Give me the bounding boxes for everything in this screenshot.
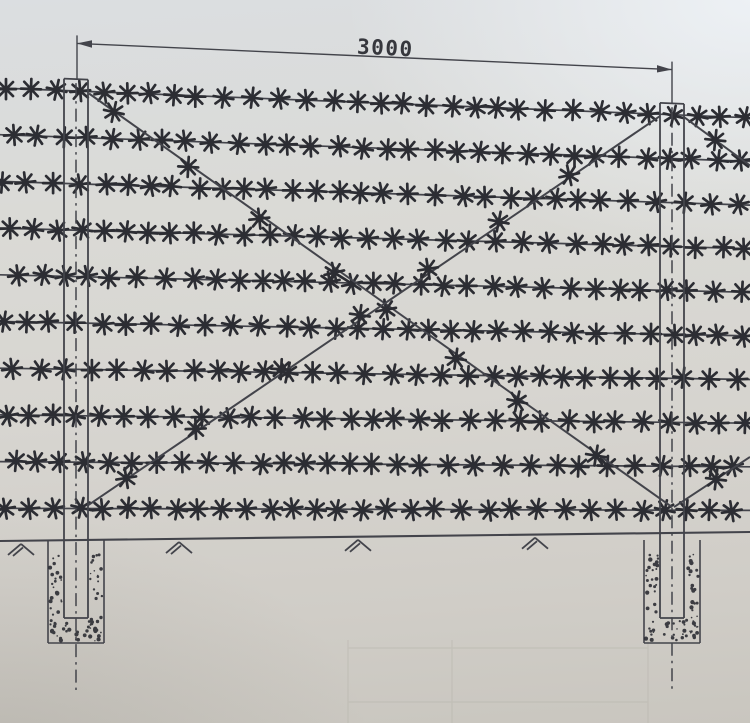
- barb-icon: [235, 498, 258, 521]
- barb-icon: [685, 237, 706, 258]
- barb-icon: [401, 499, 424, 522]
- barb-icon: [185, 87, 205, 107]
- barb-icon: [683, 323, 706, 346]
- barb-icon: [65, 313, 85, 333]
- barb-icon: [341, 408, 362, 429]
- barb-icon: [330, 181, 351, 202]
- barb-icon: [492, 143, 513, 164]
- barb-icon: [96, 174, 117, 195]
- barb-icon: [314, 409, 335, 430]
- barb-icon: [484, 409, 506, 431]
- dimension-label: 3000: [357, 35, 415, 62]
- barb-icon: [699, 368, 720, 389]
- barb-icon: [82, 360, 102, 380]
- barb-icon: [48, 451, 70, 473]
- barb-icon: [18, 405, 39, 426]
- soil-hatch-icon: [345, 540, 371, 552]
- barb-icon: [474, 187, 495, 208]
- barb-icon: [281, 497, 304, 520]
- barb-icon: [462, 320, 484, 342]
- barb-icon: [733, 238, 750, 259]
- barb-icon: [137, 222, 158, 243]
- barb-icon: [608, 279, 631, 302]
- barb-icon: [430, 364, 453, 387]
- barb-icon: [255, 134, 277, 156]
- barb-icon: [195, 315, 215, 335]
- barb-icon: [115, 220, 138, 243]
- barb-icon: [339, 453, 360, 474]
- brace-left-bottom-to-right-top: [88, 116, 660, 505]
- barb-icon: [117, 83, 138, 104]
- barb-icon: [435, 230, 456, 251]
- barb-icon: [140, 497, 162, 519]
- barb-icon: [704, 129, 726, 151]
- barb-icon: [727, 369, 748, 390]
- barb-icon: [664, 325, 685, 346]
- barb-icon: [223, 452, 244, 473]
- barb-icon: [603, 411, 625, 433]
- barb-icon: [187, 499, 208, 520]
- page-bleed-through: [348, 640, 648, 723]
- barb-icon: [446, 141, 467, 162]
- barb-icon: [641, 324, 661, 344]
- barb-icon: [617, 190, 638, 211]
- photo-of-drawing: 3000: [0, 0, 750, 723]
- barb-icon: [43, 405, 63, 425]
- barb-icon: [459, 409, 482, 432]
- barb-icon: [423, 498, 444, 519]
- soil-hatch-icon: [8, 544, 34, 556]
- barb-icon: [416, 95, 437, 116]
- barb-icon: [16, 312, 37, 333]
- barb-icon: [98, 267, 120, 289]
- barb-icon: [685, 412, 708, 435]
- barb-icon: [159, 223, 180, 244]
- dimension-arrow-icon: [77, 40, 92, 48]
- barb-icon: [305, 498, 328, 521]
- barb-icon: [234, 225, 255, 246]
- barb-icon: [487, 210, 510, 233]
- barb-icon: [519, 454, 542, 477]
- barb-icon: [300, 136, 321, 157]
- barb-icon: [417, 257, 440, 280]
- barb-icon: [7, 264, 30, 287]
- barb-icon: [615, 323, 635, 343]
- ground: [0, 532, 750, 556]
- barb-icon: [377, 139, 398, 160]
- barb-icon: [551, 366, 574, 389]
- barb-icon: [294, 271, 315, 292]
- barb-icon: [383, 408, 404, 429]
- barb-icon: [661, 236, 682, 257]
- barb-icon: [705, 468, 727, 490]
- barb-icon: [37, 311, 59, 333]
- barb-icon: [679, 455, 700, 476]
- barb-icon: [306, 180, 328, 202]
- barb-icon: [21, 79, 42, 100]
- barb-icon: [565, 233, 588, 256]
- barb-icon: [432, 411, 452, 431]
- barb-icon: [107, 360, 127, 380]
- barb-icon: [579, 499, 601, 521]
- barb-icon: [505, 390, 529, 414]
- barb-icon: [517, 143, 540, 166]
- barb-icon: [371, 93, 392, 114]
- barb-icon: [116, 315, 136, 335]
- barb-icon: [567, 189, 588, 210]
- barb-icon: [1, 358, 24, 381]
- barb-icon: [14, 171, 36, 193]
- barb-icon: [350, 182, 372, 204]
- barb-icon: [234, 178, 255, 199]
- barb-icon: [511, 231, 534, 254]
- barb-icon: [265, 408, 285, 428]
- barb-icon: [442, 95, 464, 117]
- barb-icon: [507, 98, 529, 120]
- barb-icon: [241, 87, 263, 109]
- barb-icon: [356, 227, 379, 250]
- barb-icon: [532, 277, 555, 300]
- barb-icon: [485, 96, 508, 119]
- barb-icon: [589, 189, 611, 211]
- barb-icon: [283, 180, 303, 200]
- barb-icon: [732, 325, 750, 348]
- barb-icon: [526, 497, 549, 520]
- barb-icon: [0, 172, 13, 193]
- barb-icon: [720, 500, 743, 523]
- barb-icon: [276, 134, 297, 155]
- barb-icon: [255, 178, 278, 201]
- barb-icon: [713, 237, 734, 258]
- barb-icon: [676, 280, 697, 301]
- left-post: [64, 79, 88, 690]
- barb-icon: [362, 454, 382, 474]
- barb-icon: [499, 497, 522, 520]
- barb-icon: [114, 406, 134, 426]
- barb-icon: [406, 364, 429, 387]
- barb-icon: [397, 184, 418, 205]
- barb-icon: [128, 128, 150, 150]
- barb-icon: [568, 456, 589, 477]
- barb-icon: [93, 81, 116, 104]
- barb-icon: [163, 85, 184, 106]
- barbed-wire-row: [0, 171, 750, 216]
- barb-icon: [207, 359, 229, 381]
- barb-icon: [184, 223, 204, 243]
- barb-icon: [307, 225, 329, 247]
- dimension-arrow-icon: [657, 65, 672, 72]
- barb-icon: [185, 418, 206, 439]
- barb-icon: [47, 219, 70, 242]
- barb-icon: [347, 92, 368, 113]
- ground-line: [0, 532, 750, 541]
- barb-icon: [137, 407, 158, 428]
- barb-icon: [76, 126, 97, 147]
- barb-icon: [540, 144, 562, 166]
- barb-icon: [585, 279, 606, 300]
- barbed-wire-row: [0, 218, 750, 260]
- barb-icon: [397, 318, 419, 340]
- barb-icon: [94, 220, 115, 241]
- barbed-wire-row: [0, 358, 750, 391]
- barb-icon: [501, 188, 522, 209]
- barb-icon: [600, 367, 621, 388]
- barb-icon: [574, 367, 595, 388]
- barb-icon: [612, 233, 635, 256]
- barb-icon: [173, 129, 196, 152]
- barb-icon: [478, 499, 501, 522]
- barb-icon: [115, 467, 138, 490]
- barb-icon: [457, 276, 477, 296]
- barb-icon: [624, 455, 645, 476]
- barb-icon: [196, 451, 219, 474]
- barb-icon: [163, 406, 185, 428]
- barb-icon: [735, 413, 750, 434]
- barb-icon: [584, 145, 607, 168]
- barb-icon: [539, 320, 561, 342]
- barb-icon: [425, 140, 445, 160]
- barb-icon: [184, 360, 205, 381]
- barb-icon: [655, 279, 678, 302]
- barb-icon: [277, 316, 298, 337]
- barb-icon: [592, 233, 613, 254]
- barb-icon: [565, 146, 585, 166]
- barb-icon: [178, 156, 199, 177]
- barb-icon: [141, 313, 161, 333]
- barb-icon: [274, 453, 294, 473]
- barb-icon: [708, 413, 729, 434]
- barb-icon: [172, 452, 193, 473]
- barb-icon: [92, 313, 114, 335]
- barb-icon: [547, 455, 568, 476]
- barb-icon: [189, 178, 210, 199]
- barbed-wire-row: [0, 450, 750, 478]
- barb-icon: [324, 90, 346, 112]
- barb-icon: [699, 499, 720, 520]
- soil-hatch-icon: [522, 538, 548, 550]
- barb-icon: [227, 132, 250, 155]
- barb-icon: [445, 347, 468, 370]
- barb-icon: [0, 79, 16, 99]
- barb-icon: [0, 218, 20, 239]
- barb-icon: [676, 499, 698, 521]
- barb-icon: [605, 499, 627, 521]
- barb-icon: [353, 363, 375, 385]
- barb-icon: [709, 106, 730, 127]
- right-post: [660, 103, 684, 690]
- barb-icon: [295, 89, 317, 111]
- barb-icon: [534, 100, 555, 121]
- barb-icon: [387, 454, 408, 475]
- barb-icon: [732, 281, 750, 302]
- barb-icon: [638, 234, 659, 255]
- barb-icon: [562, 99, 583, 120]
- barb-icon: [391, 92, 413, 114]
- barb-icon: [584, 412, 605, 433]
- barb-icon: [512, 320, 534, 342]
- wire-rows: [0, 78, 750, 523]
- barb-icon: [160, 175, 182, 197]
- barb-icon: [303, 362, 323, 382]
- barb-icon: [212, 86, 235, 109]
- barb-icon: [560, 278, 582, 300]
- barb-icon: [156, 360, 177, 381]
- barb-icon: [700, 193, 723, 216]
- barb-icon: [317, 453, 338, 474]
- barb-icon: [248, 208, 270, 230]
- barb-icon: [646, 369, 666, 389]
- barb-icon: [5, 450, 27, 472]
- barb-icon: [326, 362, 348, 384]
- barb-icon: [637, 103, 659, 125]
- barb-icon: [437, 455, 459, 477]
- barb-icon: [409, 455, 430, 476]
- barb-icon: [629, 280, 650, 301]
- barb-icon: [362, 409, 384, 431]
- barbed-wire-row: [0, 496, 750, 523]
- barb-icon: [199, 131, 221, 153]
- barb-icon: [3, 124, 24, 145]
- barb-icon: [330, 227, 353, 250]
- barb-icon: [586, 324, 606, 344]
- barbed-wire-row: [0, 404, 750, 435]
- barb-icon: [229, 270, 251, 292]
- barb-icon: [372, 319, 393, 340]
- barb-icon: [117, 497, 139, 519]
- barb-icon: [118, 174, 140, 196]
- barb-icon: [43, 173, 63, 193]
- barb-icon: [126, 266, 148, 288]
- barb-icon: [622, 369, 642, 389]
- barb-icon: [425, 185, 446, 206]
- barb-icon: [328, 135, 351, 158]
- barb-icon: [351, 499, 374, 522]
- barb-icon: [210, 498, 233, 521]
- barb-icon: [397, 139, 419, 161]
- barb-icon: [441, 320, 462, 341]
- barb-icon: [707, 149, 730, 172]
- barb-icon: [168, 315, 191, 338]
- barb-icon: [253, 271, 273, 291]
- barb-icon: [271, 359, 292, 380]
- soil-hatch-icon: [166, 542, 192, 554]
- barb-icon: [18, 498, 40, 520]
- barbed-wire-row: [0, 310, 750, 348]
- fence-elevation-drawing: 3000: [0, 0, 750, 723]
- barb-icon: [382, 227, 405, 250]
